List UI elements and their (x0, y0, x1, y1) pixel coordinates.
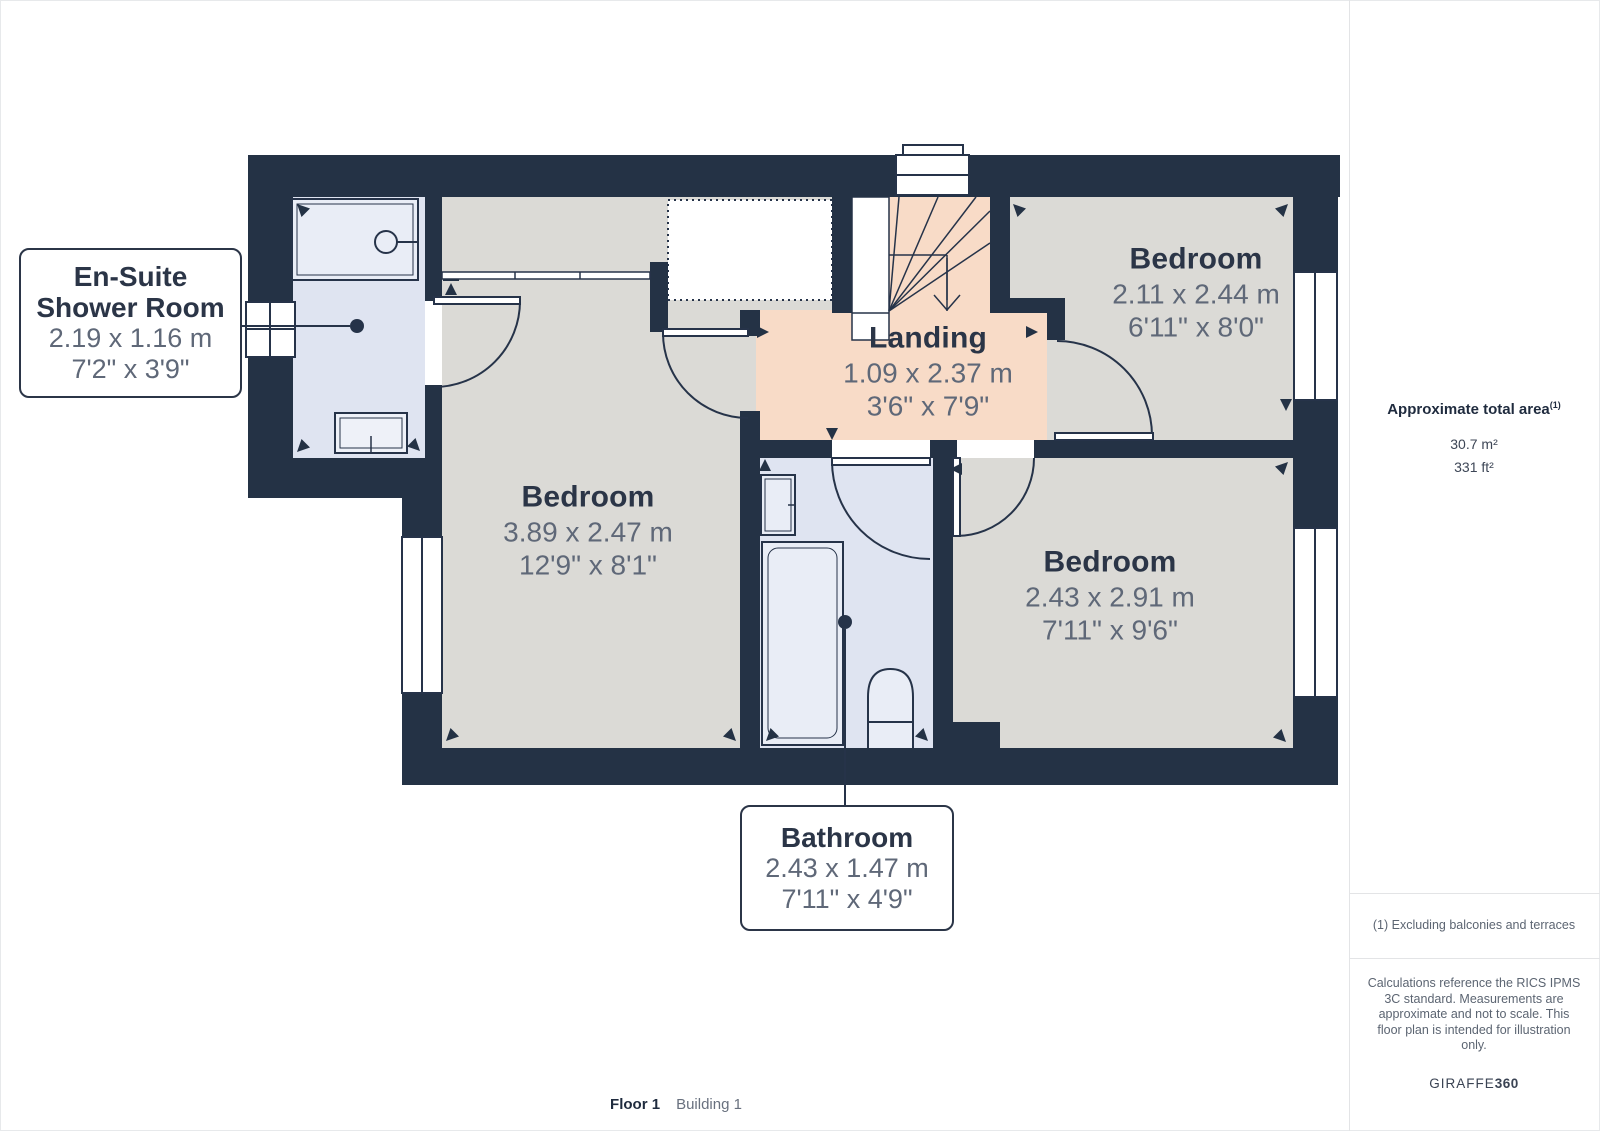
room-label-bedroom-main: Bedroom 3.89 x 2.47 m 12'9" x 8'1" (503, 479, 673, 582)
bathroom-sink-icon (761, 475, 796, 535)
shower-icon (292, 199, 418, 280)
room-dim-imperial: 7'2" x 3'9" (71, 354, 189, 385)
room-name: Bedroom (1025, 544, 1195, 581)
cupboard-void (668, 200, 832, 300)
leader-dot-ensuite (350, 319, 364, 333)
bathtub-icon (762, 542, 843, 745)
room-name: Landing (843, 320, 1013, 357)
room-dim-imperial: 7'11" x 4'9" (781, 884, 912, 915)
sidebar-hdivider-2 (1349, 958, 1600, 959)
room-dim-metric: 2.43 x 1.47 m (765, 853, 929, 884)
door-leaf-bedroom-top-right (1055, 433, 1153, 440)
floorplan-page: Bedroom 3.89 x 2.47 m 12'9" x 8'1" Landi… (0, 0, 1600, 1131)
total-area-title: Approximate total area(1) (1387, 400, 1561, 418)
room-dim-metric: 1.09 x 2.37 m (843, 357, 1013, 390)
brand-name: GIRAFFE (1429, 1076, 1495, 1091)
room-dim-metric: 2.19 x 1.16 m (49, 323, 213, 354)
room-label-bedroom-bottom-right: Bedroom 2.43 x 2.91 m 7'11" x 9'6" (1025, 544, 1195, 647)
floorplan-drawing (0, 0, 1600, 1131)
room-name-line1: En-Suite (74, 261, 188, 292)
toilet-icon (868, 669, 913, 748)
room-label-landing: Landing 1.09 x 2.37 m 3'6" x 7'9" (843, 320, 1013, 423)
floor-selector: Floor 1Building 1 (610, 1096, 742, 1113)
total-area-footnote-marker: (1) (1550, 400, 1561, 410)
sidebar-divider (1349, 0, 1350, 1131)
total-area-ft2: 331 ft² (1454, 459, 1494, 475)
callout-bathroom: Bathroom 2.43 x 1.47 m 7'11" x 4'9" (740, 805, 954, 931)
callout-ensuite: En-Suite Shower Room 2.19 x 1.16 m 7'2" … (19, 248, 242, 398)
room-dim-imperial: 3'6" x 7'9" (843, 390, 1013, 423)
room-dim-metric: 2.11 x 2.44 m (1112, 278, 1280, 311)
room-dim-imperial: 7'11" x 9'6" (1025, 614, 1195, 647)
leader-dot-bathroom (838, 615, 852, 629)
door-leaf-ensuite (434, 297, 520, 304)
room-label-bedroom-top-right: Bedroom 2.11 x 2.44 m 6'11" x 8'0" (1112, 241, 1280, 344)
total-area-m2: 30.7 m² (1450, 436, 1497, 452)
room-name: Bathroom (781, 822, 913, 853)
room-name-line2: Shower Room (36, 292, 224, 323)
thin-wall (442, 272, 650, 279)
ensuite-sink-icon (335, 413, 407, 453)
brand-suffix: 360 (1495, 1076, 1519, 1091)
brand-logo: GIRAFFE360 (1429, 1076, 1519, 1091)
total-area-title-text: Approximate total area (1387, 401, 1550, 418)
footnote-exclusions: (1) Excluding balconies and terraces (1373, 918, 1575, 932)
door-leaf-bedroom-main (663, 329, 748, 336)
room-name: Bedroom (1112, 241, 1280, 278)
room-dim-metric: 3.89 x 2.47 m (503, 516, 673, 549)
building-label[interactable]: Building 1 (676, 1096, 742, 1113)
room-dim-imperial: 12'9" x 8'1" (503, 549, 673, 582)
floor-label[interactable]: Floor 1 (610, 1096, 660, 1113)
door-leaf-bathroom (832, 458, 930, 465)
disclaimer-text: Calculations reference the RICS IPMS 3C … (1366, 976, 1582, 1054)
room-dim-imperial: 6'11" x 8'0" (1112, 311, 1280, 344)
room-name: Bedroom (503, 479, 673, 516)
sidebar-hdivider-1 (1349, 893, 1600, 894)
room-dim-metric: 2.43 x 2.91 m (1025, 581, 1195, 614)
